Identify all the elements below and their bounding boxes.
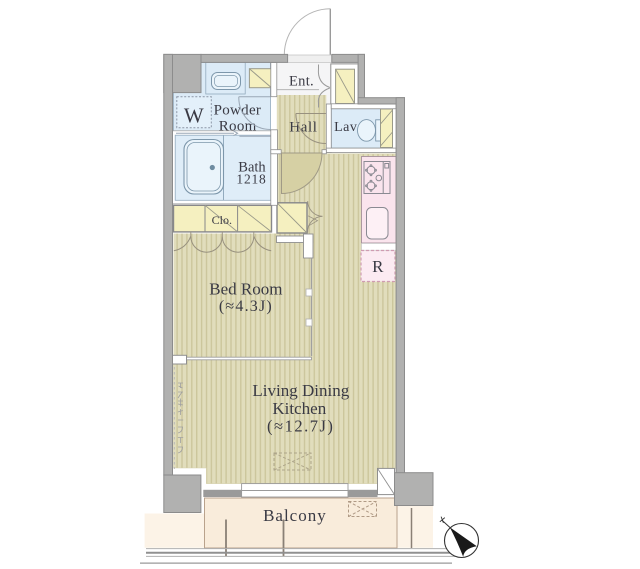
svg-text:Living Dining: Living Dining (252, 381, 349, 400)
svg-text:1218: 1218 (236, 171, 266, 186)
svg-text:Powder: Powder (214, 103, 262, 119)
svg-text:(≈12.7J): (≈12.7J) (267, 417, 334, 436)
svg-text:Clo.: Clo. (212, 213, 232, 227)
svg-text:(≈4.3J): (≈4.3J) (219, 298, 273, 315)
svg-text:Lav.: Lav. (334, 120, 360, 135)
svg-text:W: W (184, 104, 204, 128)
svg-text:Ent.: Ent. (289, 74, 314, 90)
svg-text:R: R (372, 257, 384, 276)
svg-text:Balcony: Balcony (263, 506, 327, 525)
svg-text:Bed Room: Bed Room (209, 279, 282, 298)
svg-text:Kitchen: Kitchen (272, 399, 326, 418)
